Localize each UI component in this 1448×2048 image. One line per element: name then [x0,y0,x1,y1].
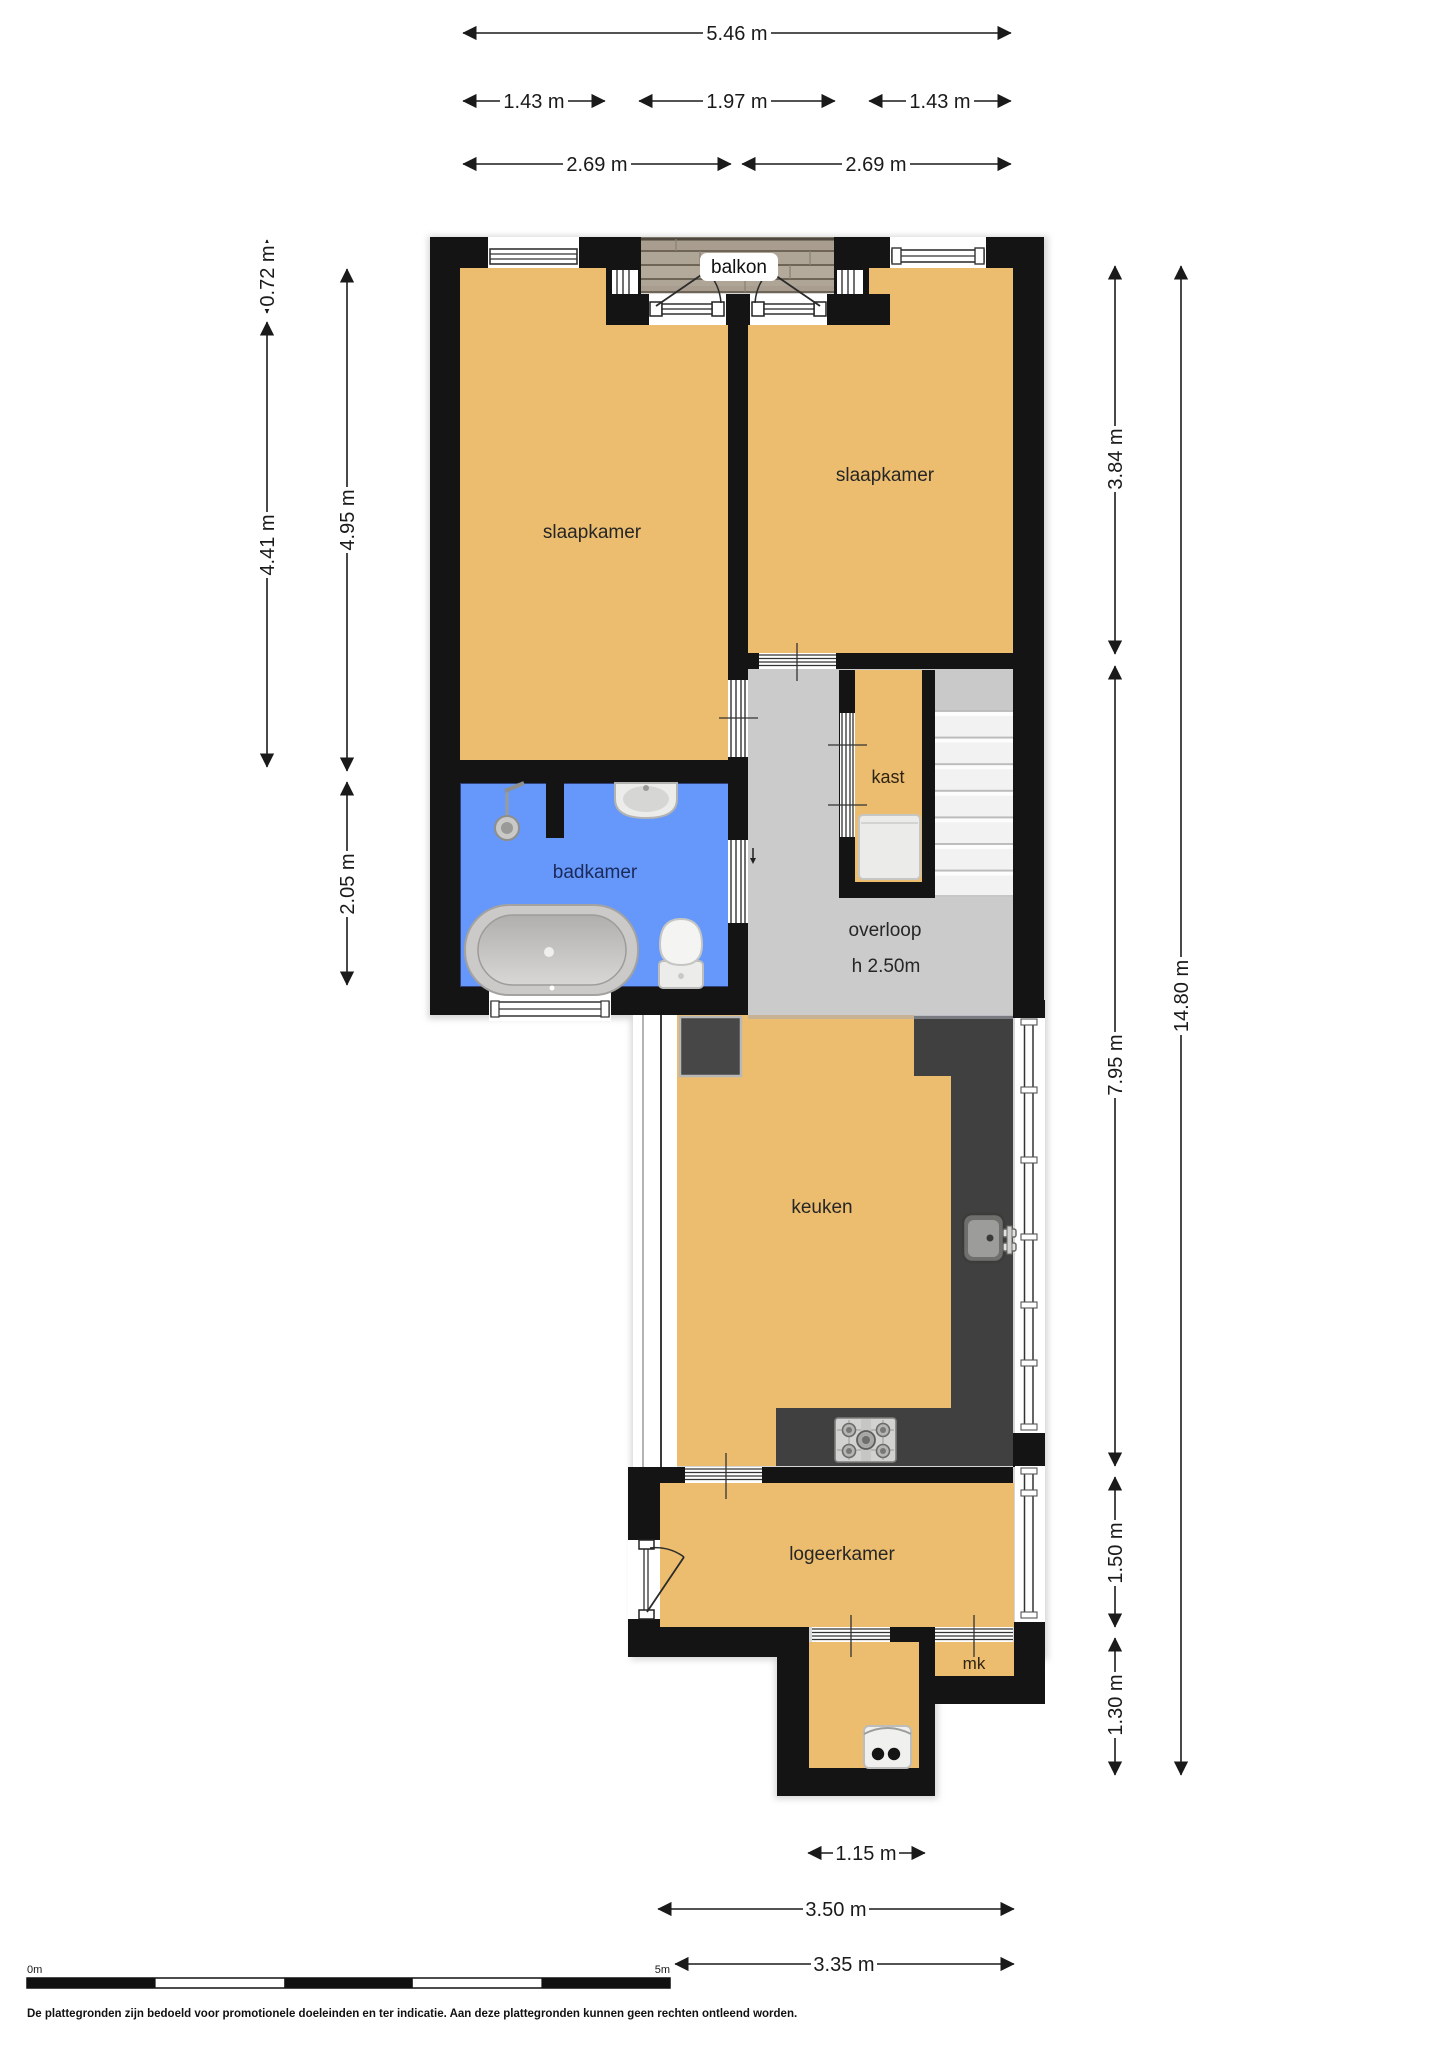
svg-text:1.50 m: 1.50 m [1105,1522,1127,1583]
svg-text:1.30 m: 1.30 m [1105,1674,1127,1735]
svg-text:slaapkamer: slaapkamer [836,465,935,486]
svg-text:5m: 5m [655,1964,670,1976]
svg-text:14.80 m: 14.80 m [1171,960,1193,1032]
svg-text:slaapkamer: slaapkamer [543,522,642,543]
svg-text:De plattegronden zijn bedoeld: De plattegronden zijn bedoeld voor promo… [27,2008,797,2020]
svg-text:1.15 m: 1.15 m [835,1843,896,1865]
svg-text:1.43 m: 1.43 m [503,91,564,113]
svg-text:3.35 m: 3.35 m [813,1954,874,1976]
svg-text:h 2.50m: h 2.50m [852,956,921,977]
svg-text:balkon: balkon [711,257,767,278]
svg-text:3.84 m: 3.84 m [1105,428,1127,489]
svg-text:2.05 m: 2.05 m [337,853,359,914]
svg-text:2.69 m: 2.69 m [845,154,906,176]
svg-text:5.46 m: 5.46 m [706,23,767,45]
svg-text:badkamer: badkamer [553,862,638,883]
svg-text:2.69 m: 2.69 m [566,154,627,176]
svg-text:7.95 m: 7.95 m [1105,1034,1127,1095]
svg-text:keuken: keuken [791,1197,852,1218]
svg-text:logeerkamer: logeerkamer [789,1544,895,1565]
svg-text:1.43 m: 1.43 m [909,91,970,113]
svg-text:3.50 m: 3.50 m [805,1899,866,1921]
svg-text:1.97 m: 1.97 m [706,91,767,113]
svg-text:mk: mk [963,1654,986,1673]
svg-text:4.41 m: 4.41 m [257,514,279,575]
svg-text:0m: 0m [27,1964,42,1976]
svg-text:kast: kast [871,767,904,787]
svg-text:0.72 m: 0.72 m [257,245,279,306]
svg-text:overloop: overloop [849,920,922,941]
svg-text:4.95 m: 4.95 m [337,489,359,550]
